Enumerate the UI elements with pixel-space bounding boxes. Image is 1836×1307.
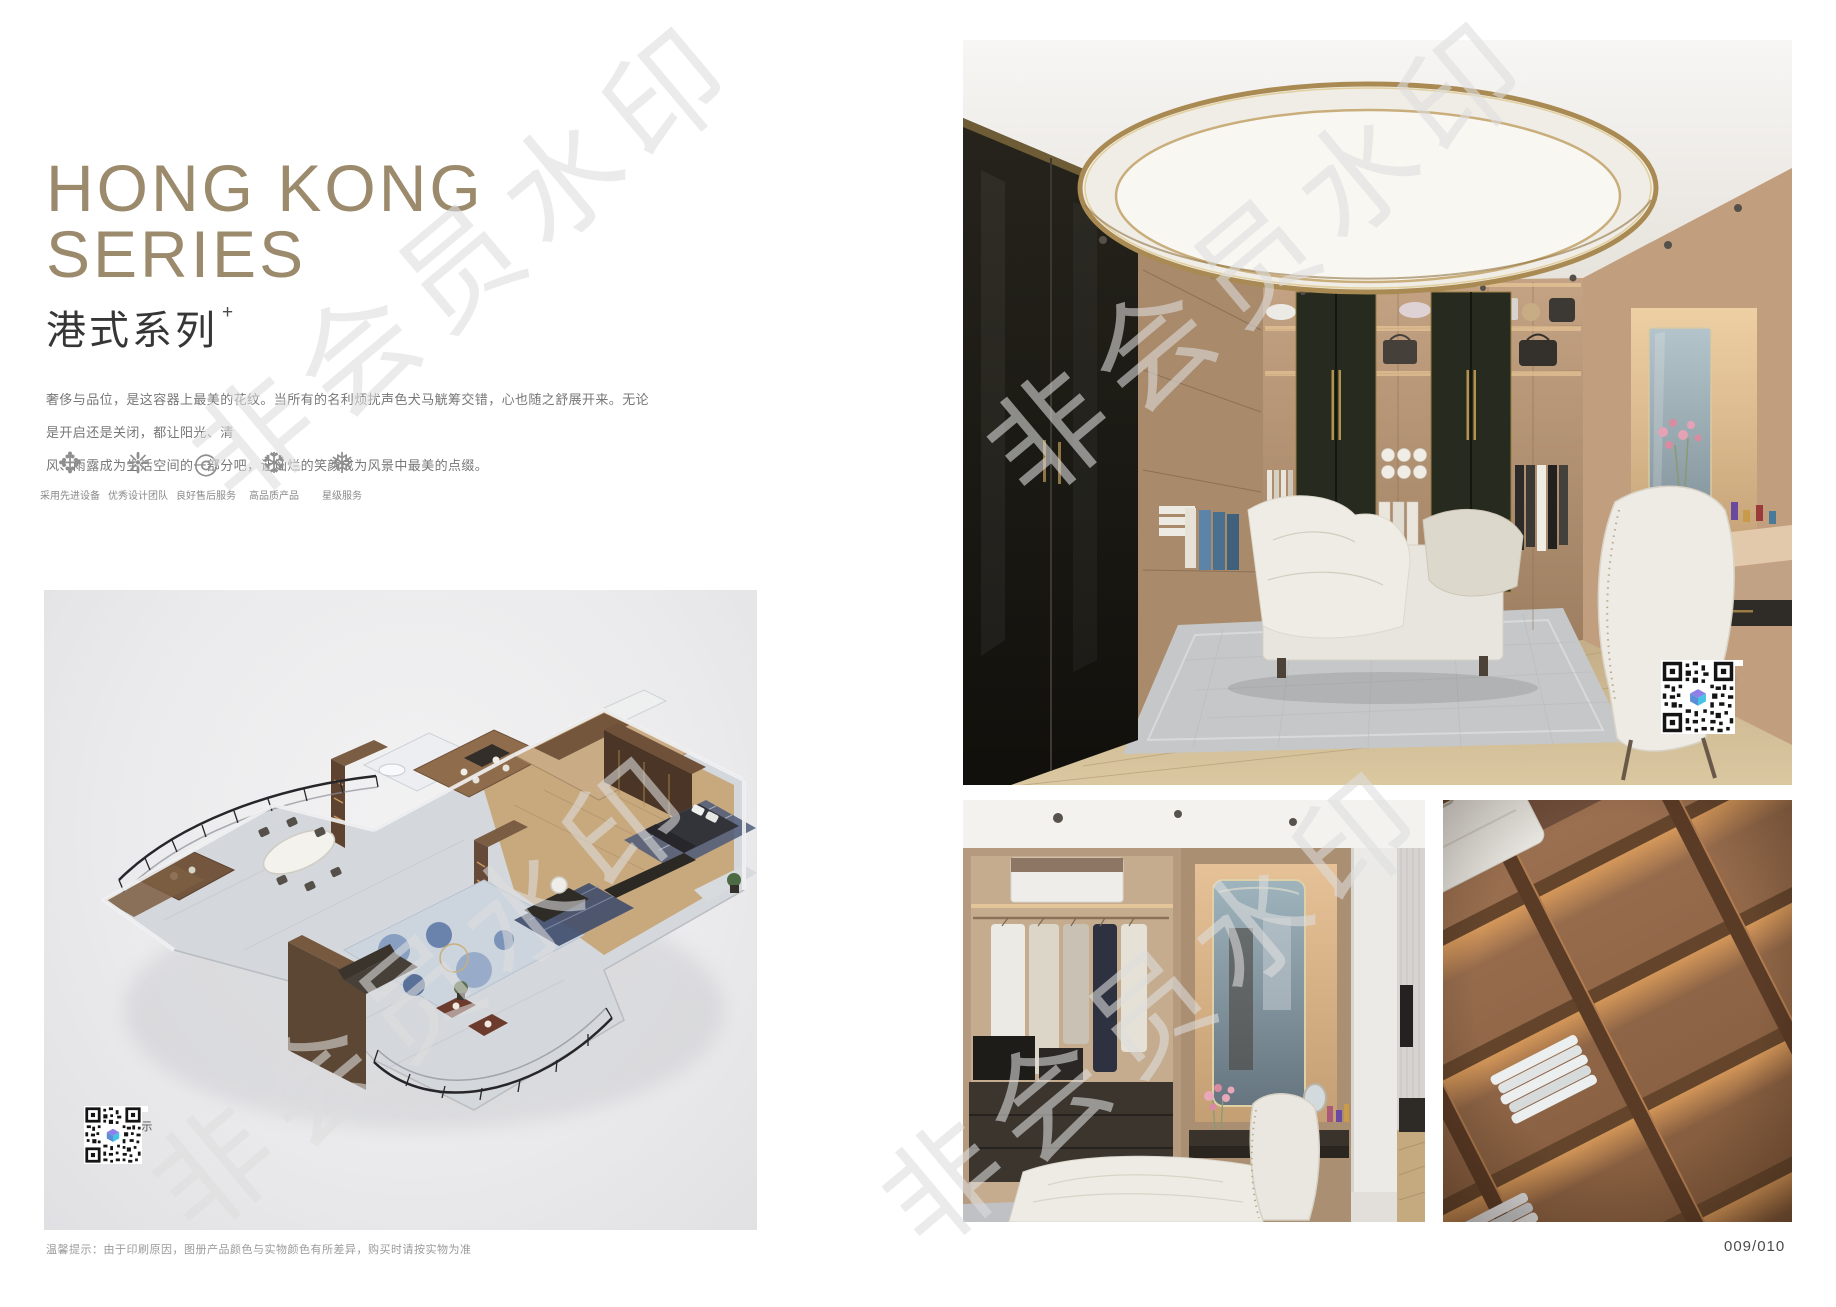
feature-label: 优秀设计团队 — [108, 487, 168, 502]
feature-item: ◎ 良好售后服务 — [176, 447, 236, 502]
qr-code — [1661, 660, 1743, 666]
feature-item: ❆ 高品质产品 — [244, 447, 304, 502]
feature-item: ❈ 优秀设计团队 — [108, 447, 168, 502]
floor-plan-qr: VR 全景展示 — [84, 1106, 148, 1134]
ornament-diamond-icon: ✥ — [40, 447, 100, 481]
qr-code — [84, 1106, 148, 1112]
feature-label: 采用先进设备 — [40, 487, 100, 502]
ornament-snowflake-icon: ❅ — [312, 447, 372, 481]
feature-label: 高品质产品 — [244, 487, 304, 502]
feature-item: ❅ 星级服务 — [312, 447, 372, 502]
series-title-cn: 港式系列+ — [46, 298, 236, 356]
photo-walk-in-closet: VR 全景展示 — [963, 40, 1792, 785]
series-title-line1: HONG KONG — [46, 151, 484, 225]
floor-plan-render — [44, 590, 757, 1230]
photo-dressing-area — [963, 800, 1425, 1222]
isometric-floor-plan-panel: VR 全景展示 — [44, 590, 757, 1230]
photo-shelf-closeup — [1443, 800, 1792, 1222]
snowflake-icon: ❆ — [244, 447, 304, 481]
feature-list: ✥ 采用先进设备 ❈ 优秀设计团队 ◎ 良好售后服务 ❆ 高品质产品 ❅ 星级服… — [40, 447, 372, 502]
shelf-closeup-render — [1443, 800, 1792, 1222]
description-line: 奢侈与品位，是这容器上最美的花纹。当所有的名利烦扰声色犬马觥筹交错，心也随之舒展… — [46, 383, 656, 449]
series-title-en: HONG KONGSERIES — [46, 155, 484, 287]
footer-note: 温馨提示：由于印刷原因，图册产品颜色与实物颜色有所差异，购买时请按实物为准 — [46, 1241, 472, 1257]
photo-qr: VR 全景展示 — [1661, 660, 1743, 688]
series-title-line2: SERIES — [46, 217, 306, 291]
ring-icon: ◎ — [176, 447, 236, 481]
dressing-area-render — [963, 800, 1425, 1222]
feature-label: 良好售后服务 — [176, 487, 236, 502]
plus-mark: + — [222, 302, 236, 323]
feature-item: ✥ 采用先进设备 — [40, 447, 100, 502]
ornament-rosette-icon: ❈ — [108, 447, 168, 481]
catalog-page: HONG KONGSERIES 港式系列+ 奢侈与品位，是这容器上最美的花纹。当… — [0, 0, 1836, 1307]
feature-label: 星级服务 — [312, 487, 372, 502]
page-number: 009/010 — [1724, 1238, 1785, 1255]
